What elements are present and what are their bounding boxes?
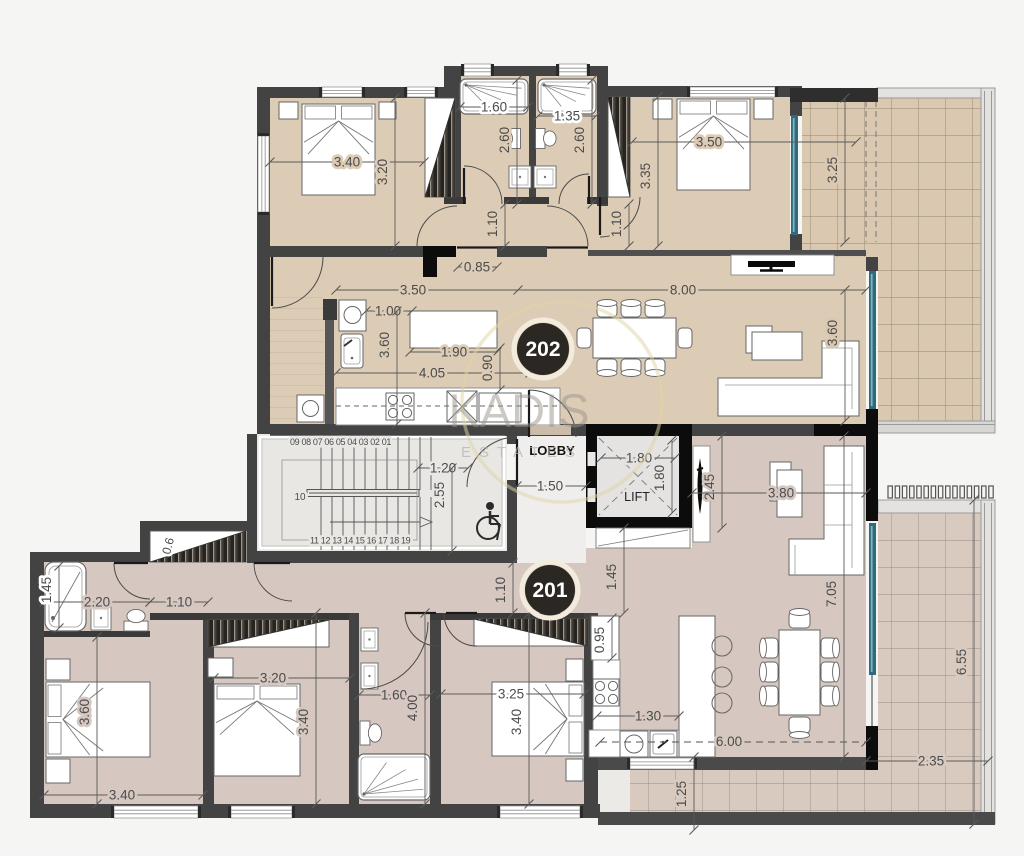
svg-text:2.45: 2.45 — [702, 474, 717, 500]
svg-text:0.95: 0.95 — [592, 627, 607, 653]
svg-text:3.40: 3.40 — [109, 788, 135, 803]
svg-text:1.50: 1.50 — [537, 479, 563, 494]
svg-text:2.35: 2.35 — [918, 754, 944, 769]
svg-text:3.80: 3.80 — [768, 486, 794, 501]
svg-text:2.20: 2.20 — [84, 595, 110, 610]
svg-text:1.35: 1.35 — [554, 109, 580, 124]
svg-text:3.20: 3.20 — [260, 671, 286, 686]
svg-text:LIFT: LIFT — [624, 490, 650, 504]
svg-text:3.25: 3.25 — [825, 157, 840, 183]
svg-text:1.10: 1.10 — [485, 211, 500, 237]
svg-text:KADIS: KADIS — [448, 384, 589, 437]
svg-text:2.60: 2.60 — [497, 127, 512, 153]
svg-text:1.10: 1.10 — [609, 211, 624, 237]
svg-text:1.25: 1.25 — [674, 781, 689, 807]
svg-text:1.10: 1.10 — [166, 595, 192, 610]
svg-text:7.05: 7.05 — [824, 581, 839, 607]
svg-text:8.00: 8.00 — [670, 283, 696, 298]
svg-text:3.50: 3.50 — [400, 283, 426, 298]
svg-text:3.40: 3.40 — [509, 709, 524, 735]
svg-text:1.30: 1.30 — [635, 709, 661, 724]
svg-text:3.50: 3.50 — [696, 135, 722, 150]
svg-text:0.85: 0.85 — [464, 260, 490, 275]
svg-text:0.90: 0.90 — [480, 355, 495, 381]
svg-text:1.60: 1.60 — [481, 100, 507, 115]
svg-text:3.35: 3.35 — [638, 163, 653, 189]
svg-text:1.90: 1.90 — [441, 345, 467, 360]
svg-text:3.25: 3.25 — [498, 687, 524, 702]
svg-text:1.45: 1.45 — [604, 564, 619, 590]
svg-text:3.40: 3.40 — [334, 155, 360, 170]
svg-text:6.00: 6.00 — [716, 734, 742, 749]
svg-text:4.00: 4.00 — [405, 695, 420, 721]
svg-text:1.45: 1.45 — [39, 577, 54, 603]
svg-text:201: 201 — [532, 579, 567, 602]
svg-text:11 12 13 14 15 16 17 18 19: 11 12 13 14 15 16 17 18 19 — [310, 536, 411, 546]
svg-text:1.10: 1.10 — [493, 577, 508, 603]
svg-text:2.60: 2.60 — [572, 127, 587, 153]
svg-text:3.40: 3.40 — [296, 709, 311, 735]
svg-text:3.20: 3.20 — [375, 159, 390, 185]
svg-text:3.60: 3.60 — [77, 699, 92, 725]
svg-text:ESTATES: ESTATES — [461, 444, 583, 461]
svg-text:09 08 07 06 05 04 03 02 01: 09 08 07 06 05 04 03 02 01 — [290, 437, 391, 447]
svg-text:10: 10 — [294, 492, 306, 503]
svg-text:4.05: 4.05 — [419, 366, 445, 381]
svg-text:1.80: 1.80 — [652, 465, 667, 491]
svg-text:1.60: 1.60 — [381, 688, 407, 703]
svg-text:6.55: 6.55 — [954, 649, 969, 675]
svg-text:202: 202 — [525, 338, 560, 361]
svg-text:3.60: 3.60 — [825, 320, 840, 346]
svg-text:2.55: 2.55 — [432, 482, 447, 508]
svg-text:3.60: 3.60 — [377, 332, 392, 358]
